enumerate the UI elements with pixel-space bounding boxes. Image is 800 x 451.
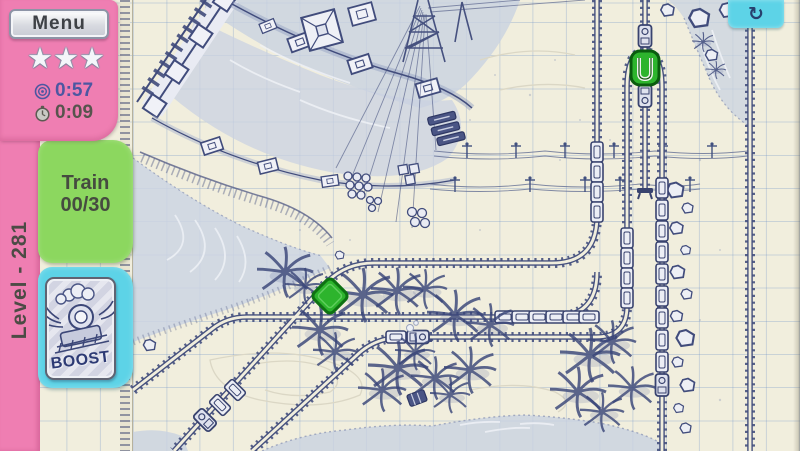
star-icon: ★ [53,44,79,74]
level-label: Level - 281 [2,170,38,390]
menu-button[interactable]: Menu [9,9,109,39]
restart-button[interactable]: ↻ [728,0,784,28]
elapsed-time-row: 0:09 [34,102,93,124]
game-screen: Menu ★★★ 0:57 0:09 Train 00/30 Level - 2… [0,0,800,451]
refresh-icon: ↻ [748,5,764,24]
star-icon: ★ [27,44,53,74]
star-rating: ★★★ [27,44,105,74]
star-icon: ★ [79,44,105,74]
menu-button-label: Menu [32,13,86,35]
train-progress-count: 00/30 [38,194,133,216]
goal-time-row: 0:57 [34,80,93,102]
track-bumper [637,188,653,199]
train-progress: Train 00/30 [38,172,133,216]
stopwatch-icon [34,105,51,122]
elapsed-time: 0:09 [55,102,93,124]
target-icon [34,83,51,100]
power-lines [430,142,748,192]
train-progress-label: Train [38,172,133,194]
station-signal-marker[interactable] [631,51,659,85]
boost-card[interactable]: BOOST [45,277,116,380]
goal-time: 0:57 [55,80,93,102]
